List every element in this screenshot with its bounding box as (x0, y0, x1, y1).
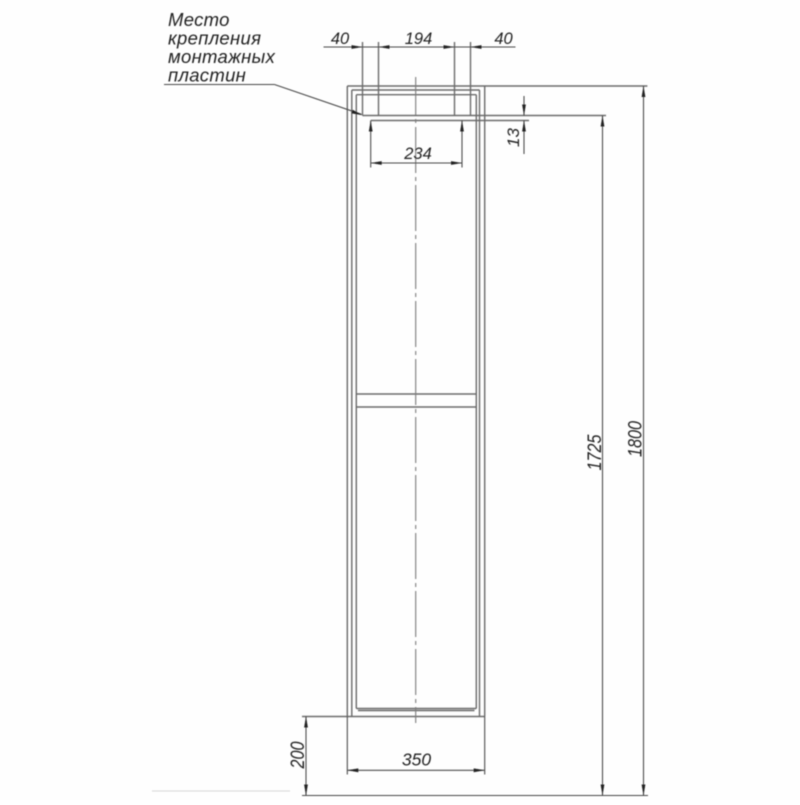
svg-text:200: 200 (287, 741, 309, 769)
svg-text:234: 234 (403, 145, 432, 163)
svg-text:40: 40 (494, 30, 513, 48)
svg-text:40: 40 (331, 30, 350, 48)
svg-text:13: 13 (504, 128, 523, 147)
svg-text:1725: 1725 (584, 434, 606, 470)
svg-text:350: 350 (402, 750, 431, 770)
svg-text:1800: 1800 (624, 421, 646, 457)
svg-text:пластин: пластин (168, 65, 246, 86)
svg-text:194: 194 (405, 30, 433, 48)
